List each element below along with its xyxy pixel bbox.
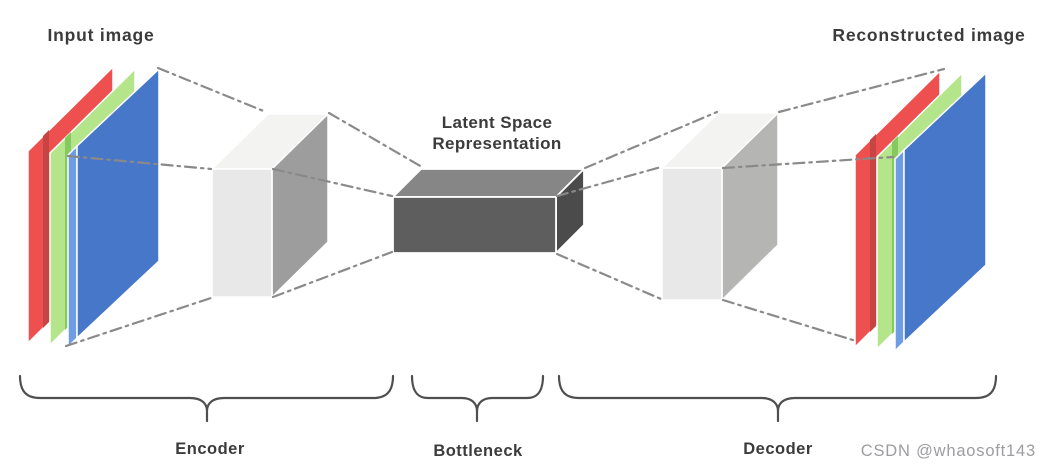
bottleneck-box: [393, 169, 584, 253]
diagram-canvas: Input image Reconstructed image Latent S…: [0, 0, 1048, 467]
decoder-brace: [559, 376, 996, 421]
encoder-box: [212, 114, 328, 297]
blue-channel-edge-strip: [68, 146, 77, 347]
braces: [20, 376, 996, 421]
latent-space-label-line1: Latent Space: [442, 113, 553, 132]
latent-space-label-line2: Representation: [432, 134, 561, 153]
csdn-watermark: CSDN @whaosoft143: [861, 442, 1036, 460]
decoder-box: [662, 113, 778, 300]
bottleneck-box-front-face: [393, 197, 556, 253]
input-image-stack: [28, 62, 164, 347]
red-channel-side: [43, 130, 49, 328]
dash-line-bottleneck-to-decoder-bottom: [557, 254, 661, 299]
encoder-brace: [20, 376, 393, 421]
decoder-label: Decoder: [743, 440, 813, 458]
encoder-label: Encoder: [175, 440, 245, 458]
bottleneck-brace: [412, 376, 543, 421]
bottleneck-label: Bottleneck: [433, 442, 523, 460]
encoder-box-front-face: [212, 169, 272, 297]
reconstructed-image-label: Reconstructed image: [832, 25, 1025, 45]
dash-line-input-to-encoder-top: [158, 68, 266, 112]
autoencoder-diagram: Input image Reconstructed image Latent S…: [0, 0, 1048, 467]
reconstructed-image-stack: [855, 66, 991, 351]
dash-line-decoder-to-output-bottom: [723, 300, 856, 341]
input-image-label: Input image: [48, 25, 155, 45]
dash-line-encoder-to-bottleneck-top: [329, 113, 422, 167]
bottleneck-box-top-face: [393, 169, 584, 197]
decoder-box-front-face: [662, 168, 722, 300]
